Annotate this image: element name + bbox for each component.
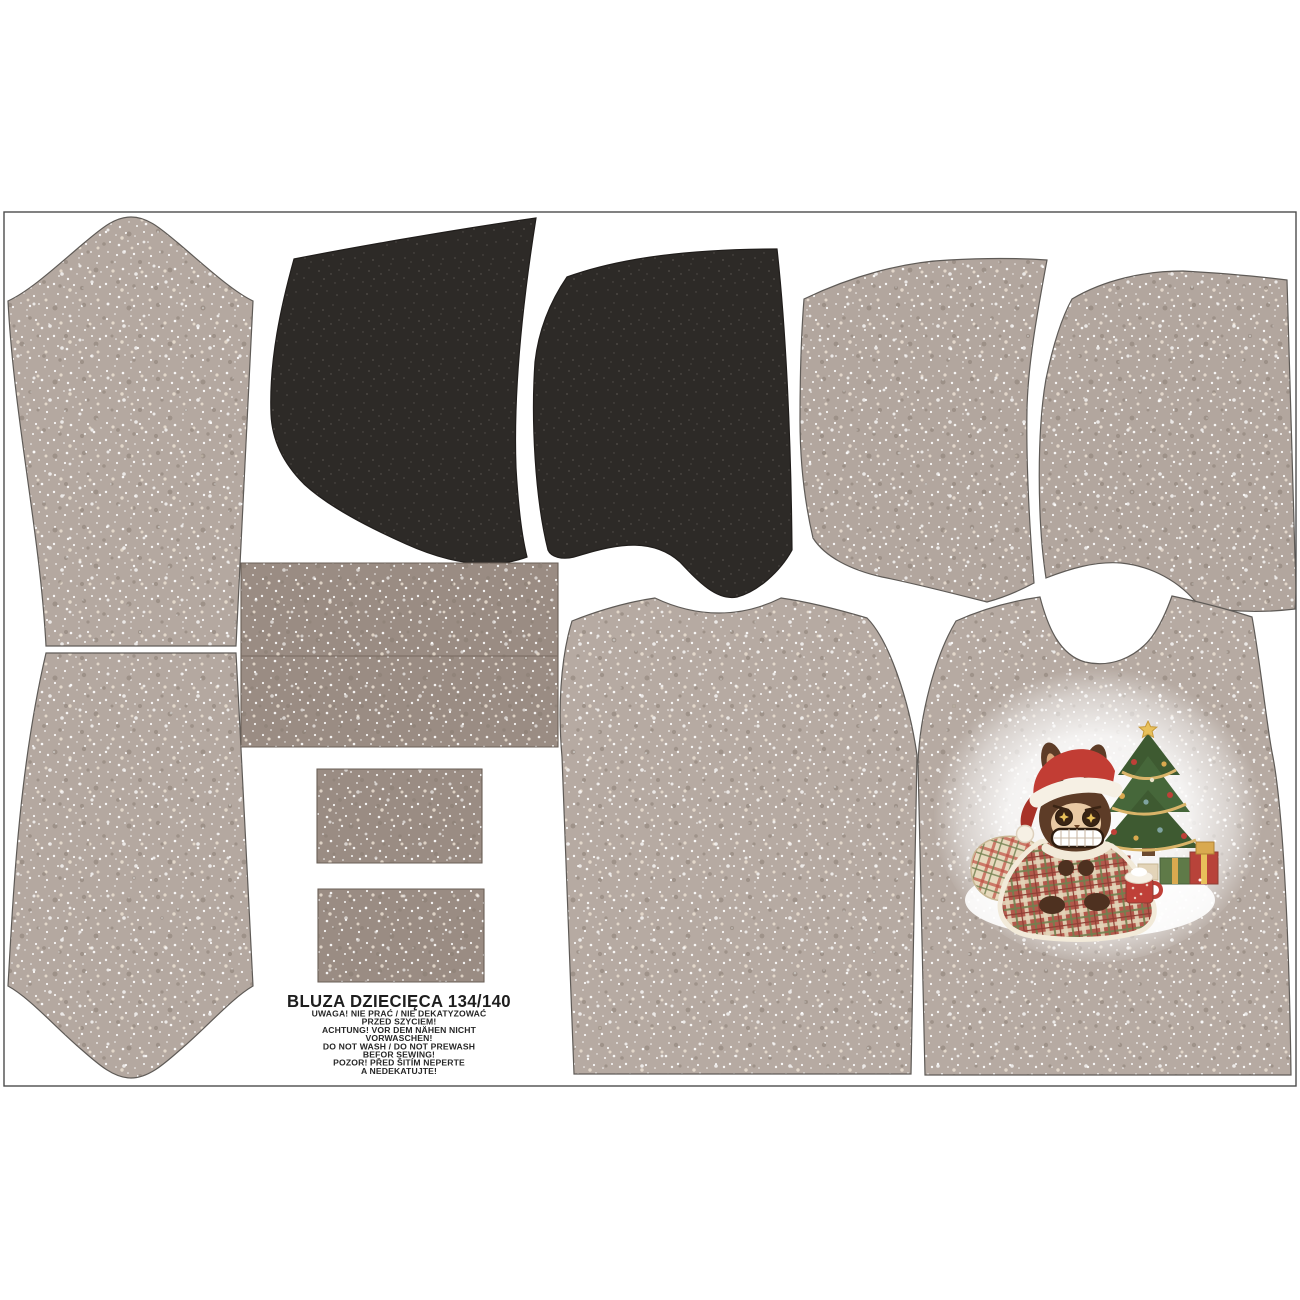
fabric-pattern-panel: BLUZA DZIECIĘCA 134/140 UWAGA! NIE PRAĆ … (0, 0, 1300, 1300)
character-foot-right (1084, 893, 1110, 911)
character-grin (1052, 829, 1103, 847)
front-body-piece (918, 596, 1291, 1075)
waistband-piece (241, 563, 558, 747)
character-paw-left (1058, 860, 1074, 876)
sleeve-piece-top (8, 217, 253, 646)
cuff-piece-2 (318, 889, 484, 982)
hood-piece-beige-right (1039, 271, 1296, 611)
care-line: A NEDEKATUJTE! (361, 1066, 437, 1076)
character-paw-right (1078, 860, 1094, 876)
cuff-piece-1 (317, 769, 482, 863)
character-foot-left (1039, 896, 1065, 914)
christmas-print (933, 662, 1263, 962)
sleeve-piece-bottom (8, 653, 253, 1078)
back-body-piece (560, 598, 917, 1074)
hood-piece-dark-right (534, 249, 792, 597)
care-instructions: UWAGA! NIE PRAĆ / NIE DEKATYZOWAĆ PRZED … (312, 1008, 487, 1076)
panel-graphic: BLUZA DZIECIĘCA 134/140 UWAGA! NIE PRAĆ … (0, 0, 1300, 1300)
hood-piece-beige-left (800, 259, 1047, 603)
